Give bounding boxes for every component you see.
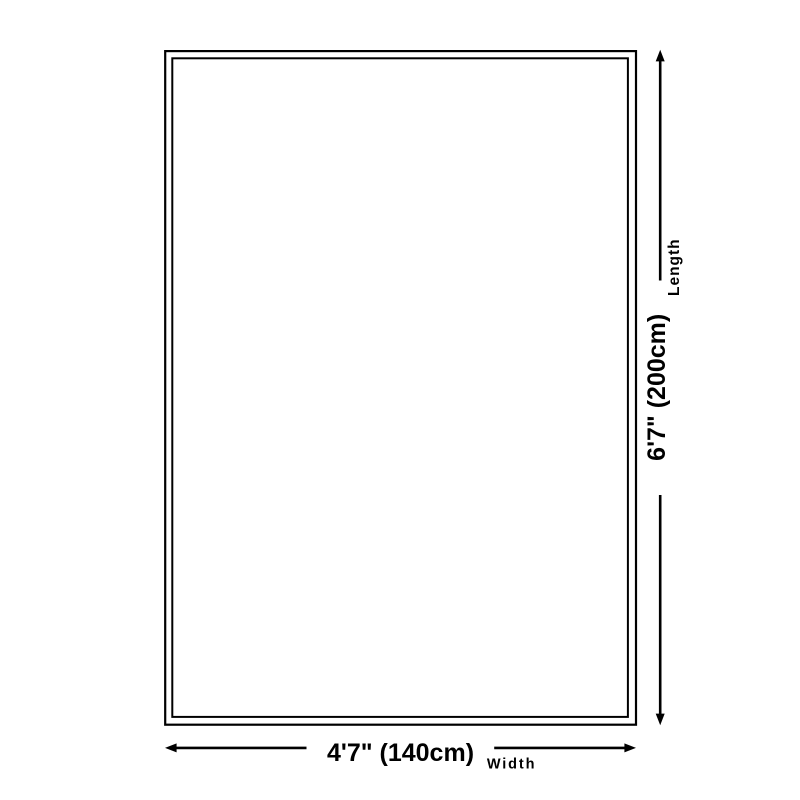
svg-text:Width: Width — [487, 757, 536, 773]
svg-text:Length: Length — [666, 238, 683, 296]
svg-text:6'7" (200cm): 6'7" (200cm) — [643, 314, 671, 461]
svg-text:4'7" (140cm): 4'7" (140cm) — [327, 739, 474, 767]
